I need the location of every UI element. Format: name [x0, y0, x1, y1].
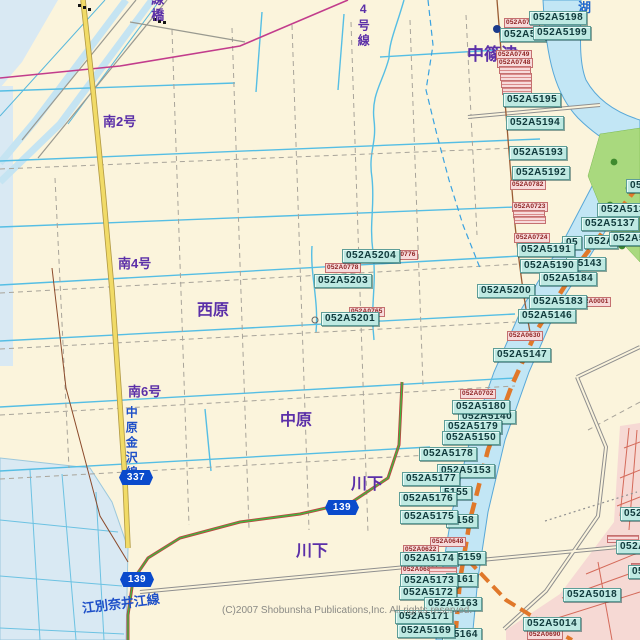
map-graphics — [0, 0, 640, 640]
copyright-notice: (C)2007 Shobunsha Publications,Inc. All … — [222, 605, 472, 616]
poi-dot-icon — [493, 25, 501, 33]
map-canvas[interactable]: 中篠津西原中原川下川下南2号南4号南6号線橋4号線湖中原金沢線江別奈井江線 05… — [0, 0, 640, 640]
